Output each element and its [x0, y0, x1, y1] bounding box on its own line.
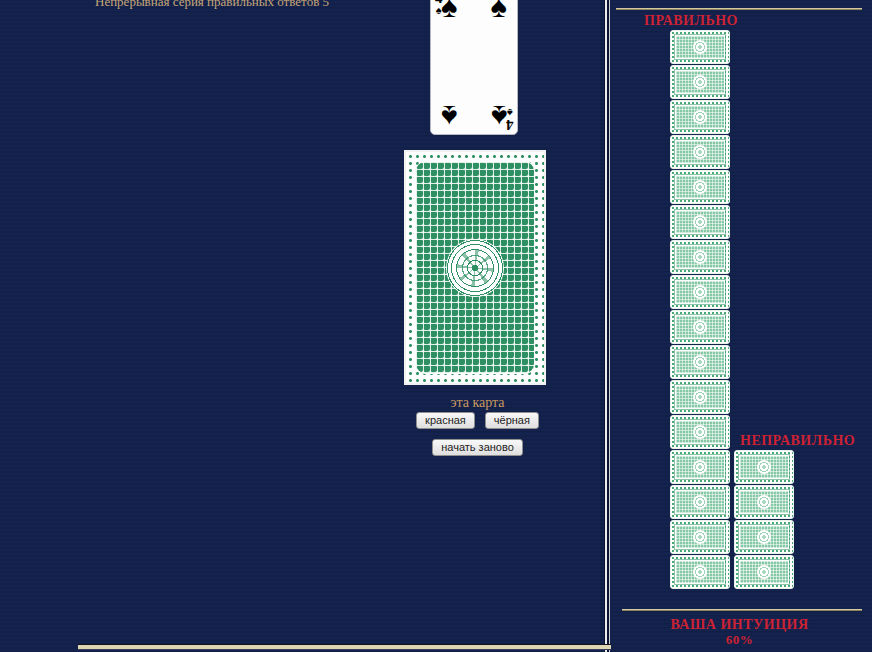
card-prompt-label: эта карта [351, 395, 604, 411]
mini-card-back [670, 310, 730, 344]
mini-card-back [670, 65, 730, 99]
mini-card-back [670, 380, 730, 414]
streak-counter-text: Непрерывная серия правильных ответов 5 [95, 0, 355, 10]
spade-pip-icon: ♠ [441, 101, 457, 132]
mini-card-medallion [693, 215, 707, 229]
right-panel-top-divider [616, 8, 862, 10]
middle-frame-border [344, 0, 351, 650]
mini-card-medallion [693, 390, 707, 404]
incorrect-card-stack [734, 450, 794, 590]
mini-card-medallion [693, 355, 707, 369]
mini-card-medallion [693, 40, 707, 54]
mini-card-medallion [693, 250, 707, 264]
restart-button[interactable]: начать заново [432, 439, 523, 456]
mini-card-medallion [757, 565, 771, 579]
correct-heading: ПРАВИЛЬНО [611, 13, 771, 29]
mini-card-medallion [693, 110, 707, 124]
card-back-pattern [415, 161, 535, 374]
mini-card-back [670, 205, 730, 239]
mini-card-back [670, 485, 730, 519]
mini-card-medallion [693, 460, 707, 474]
mini-card-back [670, 345, 730, 379]
spade-pip-icon: ♠ [491, 101, 507, 132]
guess-black-button[interactable]: чёрная [485, 412, 539, 429]
mini-card-medallion [693, 285, 707, 299]
mini-card-back [670, 275, 730, 309]
right-frame-border [604, 0, 611, 652]
mini-card-back [670, 170, 730, 204]
mini-card-medallion [693, 180, 707, 194]
mini-card-back [670, 450, 730, 484]
restart-button-row: начать заново [351, 437, 604, 456]
mini-card-back [670, 240, 730, 274]
mini-card-medallion [693, 145, 707, 159]
mini-card-back [670, 555, 730, 589]
mini-card-back [734, 450, 794, 484]
mini-card-back [734, 485, 794, 519]
mini-card-back [734, 520, 794, 554]
mini-card-back [670, 135, 730, 169]
card-back-medallion [446, 239, 504, 297]
incorrect-heading: НЕПРАВИЛЬНО [740, 433, 855, 449]
mini-card-medallion [693, 75, 707, 89]
mini-card-medallion [757, 495, 771, 509]
mini-card-medallion [757, 530, 771, 544]
intuition-percentage: 60% [611, 632, 868, 648]
revealed-card-4-of-spades: 4 ♠ 4 ♠ ♠ ♠ ♠ ♠ [430, 0, 518, 135]
mini-card-back [734, 555, 794, 589]
guess-red-button[interactable]: красная [416, 412, 475, 429]
right-panel-bottom-divider [622, 609, 862, 611]
correct-card-stack [670, 30, 730, 590]
guess-button-row: красная чёрная [351, 410, 604, 429]
mini-card-medallion [693, 565, 707, 579]
mini-card-medallion [757, 460, 771, 474]
mini-card-medallion [693, 425, 707, 439]
spade-pip-icon: ♠ [491, 0, 507, 22]
mini-card-back [670, 520, 730, 554]
bottom-frame-border [78, 644, 611, 650]
mini-card-back [670, 100, 730, 134]
mini-card-medallion [693, 495, 707, 509]
mini-card-back [670, 415, 730, 449]
spade-pip-icon: ♠ [441, 0, 457, 22]
game-page: Непрерывная серия правильных ответов 5 4… [0, 0, 872, 652]
mini-card-medallion [693, 530, 707, 544]
intuition-heading: ВАША ИНТУИЦИЯ [611, 617, 868, 633]
left-frame-border [78, 0, 85, 650]
mini-card-medallion [693, 320, 707, 334]
mini-card-back [670, 30, 730, 64]
face-down-card-back [404, 150, 546, 385]
